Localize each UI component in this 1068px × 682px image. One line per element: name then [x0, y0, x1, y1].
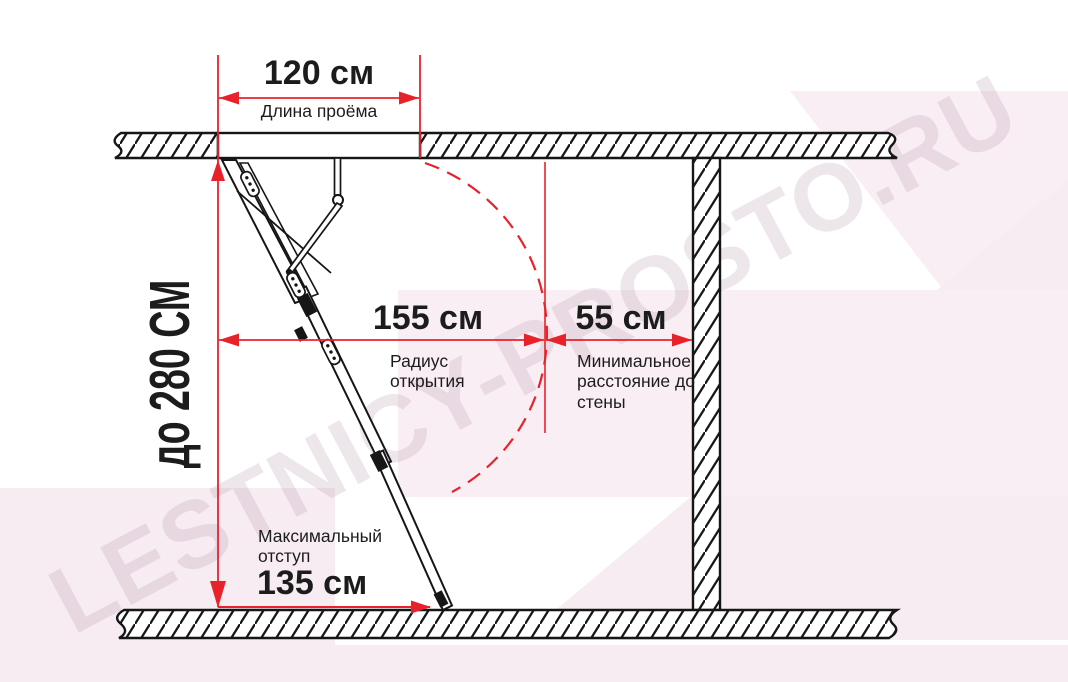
dim-opening-label: Длина проёма — [218, 101, 420, 121]
attic-ladder-dimensions-diagram: LESTNICY-PROSTO.RU — [0, 0, 1068, 682]
dim-offset-value: 135 см — [257, 566, 457, 602]
dim-offset-label: Максимальный отступ — [258, 526, 423, 567]
floor — [117, 610, 897, 638]
dim-radius-label: Радиус открытия — [390, 351, 508, 392]
ceiling — [115, 133, 897, 158]
dim-opening-value: 120 см — [218, 56, 420, 92]
hatch-opening-frame — [218, 133, 420, 158]
dim-radius-value: 155 см — [350, 301, 506, 337]
dim-ceiling-height-value: до 280 СМ — [135, 275, 205, 473]
dim-wall-clearance-value: 55 см — [551, 301, 691, 337]
dim-wall-clearance-label: Минимальное расстояние до стены — [577, 351, 705, 412]
